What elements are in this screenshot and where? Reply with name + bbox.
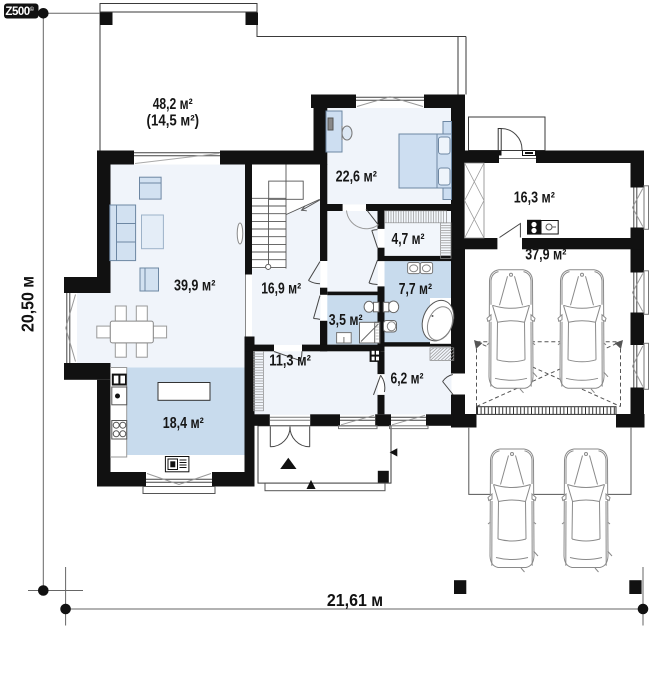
svg-text:7,7 м²: 7,7 м² bbox=[399, 281, 432, 298]
svg-text:39,9 м²: 39,9 м² bbox=[174, 277, 216, 294]
svg-text:3,5 м²: 3,5 м² bbox=[329, 312, 363, 329]
svg-text:18,4 м²: 18,4 м² bbox=[163, 415, 204, 432]
svg-text:48,2 м²: 48,2 м² bbox=[153, 96, 193, 113]
svg-text:20,50 м: 20,50 м bbox=[18, 276, 38, 332]
svg-text:22,6 м²: 22,6 м² bbox=[336, 169, 377, 186]
svg-text:6,2 м²: 6,2 м² bbox=[391, 370, 424, 387]
svg-text:(14,5 м²): (14,5 м²) bbox=[147, 112, 200, 129]
svg-text:21,61 м: 21,61 м bbox=[327, 590, 383, 610]
svg-text:4,7 м²: 4,7 м² bbox=[392, 231, 425, 248]
svg-text:16,3 м²: 16,3 м² bbox=[514, 190, 555, 207]
svg-text:11,3 м²: 11,3 м² bbox=[269, 353, 311, 370]
svg-text:37,9 м²: 37,9 м² bbox=[525, 246, 566, 263]
svg-text:16,9 м²: 16,9 м² bbox=[261, 281, 301, 298]
